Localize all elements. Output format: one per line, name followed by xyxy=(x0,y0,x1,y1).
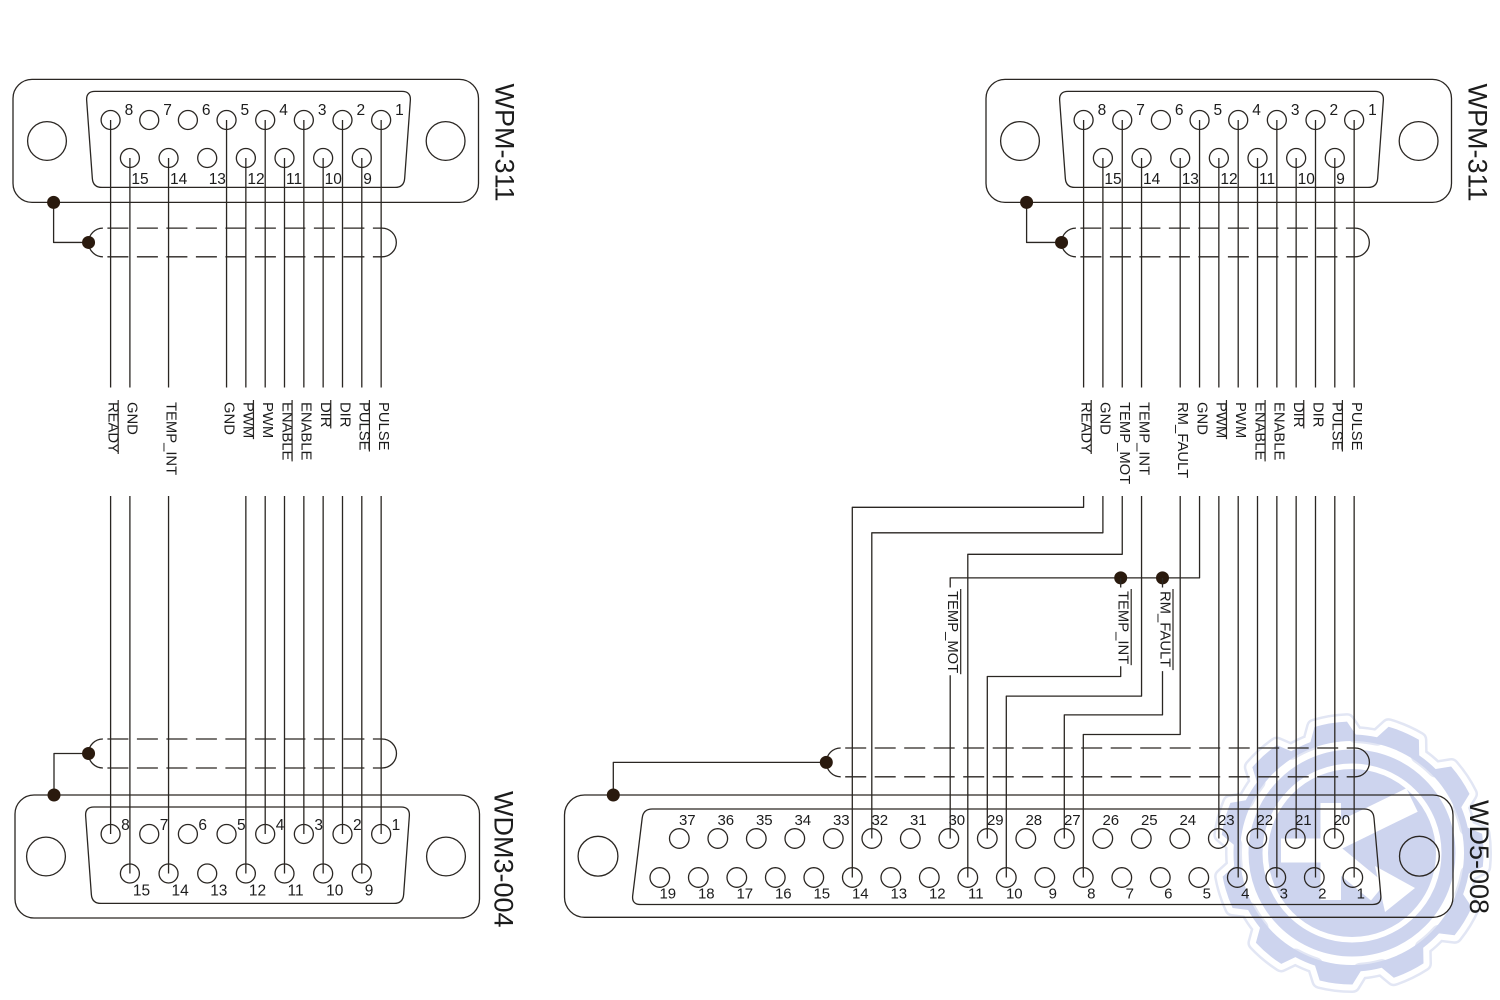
svg-text:4: 4 xyxy=(276,817,285,834)
svg-text:1: 1 xyxy=(395,102,404,119)
svg-text:31: 31 xyxy=(910,812,927,829)
svg-text:26: 26 xyxy=(1102,812,1119,829)
svg-text:11: 11 xyxy=(1259,171,1275,188)
svg-text:TEMP_INT: TEMP_INT xyxy=(1135,402,1151,475)
svg-text:2: 2 xyxy=(1330,102,1339,119)
svg-text:4: 4 xyxy=(1241,886,1249,903)
svg-text:15: 15 xyxy=(131,171,148,188)
svg-text:RM_FAULT: RM_FAULT xyxy=(1174,402,1190,478)
svg-text:3: 3 xyxy=(314,817,323,834)
svg-text:DIR: DIR xyxy=(336,402,352,427)
svg-text:33: 33 xyxy=(833,812,850,829)
svg-text:15: 15 xyxy=(1104,171,1121,188)
svg-text:6: 6 xyxy=(198,817,207,834)
svg-text:21: 21 xyxy=(1295,812,1312,829)
svg-text:10: 10 xyxy=(1298,171,1316,188)
svg-text:GND: GND xyxy=(220,402,236,435)
svg-text:1: 1 xyxy=(1357,886,1365,903)
svg-text:1: 1 xyxy=(392,817,401,834)
svg-text:10: 10 xyxy=(326,883,344,900)
svg-text:13: 13 xyxy=(890,886,907,903)
svg-text:14: 14 xyxy=(172,883,190,900)
svg-text:14: 14 xyxy=(852,886,869,903)
svg-text:19: 19 xyxy=(659,886,676,903)
svg-text:15: 15 xyxy=(133,883,150,900)
svg-text:TEMP_INT: TEMP_INT xyxy=(1115,591,1131,664)
svg-text:18: 18 xyxy=(698,886,715,903)
svg-text:2: 2 xyxy=(1318,886,1326,903)
svg-text:5: 5 xyxy=(241,102,250,119)
svg-text:GND: GND xyxy=(124,402,140,435)
svg-text:9: 9 xyxy=(1049,886,1057,903)
svg-text:13: 13 xyxy=(1182,171,1199,188)
svg-text:TEMP_INT: TEMP_INT xyxy=(162,402,178,475)
svg-text:13: 13 xyxy=(209,171,226,188)
svg-text:GND: GND xyxy=(1193,402,1209,435)
svg-text:PWM: PWM xyxy=(1232,402,1248,438)
svg-text:17: 17 xyxy=(736,886,753,903)
svg-text:16: 16 xyxy=(775,886,792,903)
svg-text:10: 10 xyxy=(1006,886,1023,903)
svg-text:4: 4 xyxy=(1252,102,1261,119)
svg-text:37: 37 xyxy=(679,812,696,829)
svg-text:3: 3 xyxy=(318,102,327,119)
svg-text:1: 1 xyxy=(1368,102,1377,119)
svg-text:8: 8 xyxy=(125,102,134,119)
svg-text:TEMP_MOT: TEMP_MOT xyxy=(1116,402,1132,484)
svg-text:9: 9 xyxy=(1336,171,1345,188)
svg-text:DIR: DIR xyxy=(1309,402,1325,427)
svg-text:PULSE: PULSE xyxy=(1348,402,1364,451)
svg-text:25: 25 xyxy=(1141,812,1158,829)
svg-text:5: 5 xyxy=(1214,102,1223,119)
svg-text:12: 12 xyxy=(929,886,946,903)
svg-text:7: 7 xyxy=(1136,102,1145,119)
svg-text:10: 10 xyxy=(325,171,343,188)
svg-text:ENABLE: ENABLE xyxy=(1271,402,1287,461)
svg-text:8: 8 xyxy=(121,817,130,834)
svg-text:12: 12 xyxy=(247,171,264,188)
svg-text:9: 9 xyxy=(363,171,372,188)
svg-text:11: 11 xyxy=(286,171,302,188)
svg-text:23: 23 xyxy=(1218,812,1235,829)
svg-text:WPM-311: WPM-311 xyxy=(1463,84,1493,202)
svg-text:32: 32 xyxy=(871,812,888,829)
svg-text:PULSE: PULSE xyxy=(375,402,391,451)
svg-text:4: 4 xyxy=(279,102,288,119)
svg-text:15: 15 xyxy=(813,886,830,903)
svg-text:24: 24 xyxy=(1179,812,1196,829)
svg-text:8: 8 xyxy=(1087,886,1095,903)
svg-text:34: 34 xyxy=(794,812,811,829)
svg-text:35: 35 xyxy=(756,812,773,829)
svg-text:29: 29 xyxy=(987,812,1004,829)
svg-text:7: 7 xyxy=(163,102,172,119)
svg-text:12: 12 xyxy=(1220,171,1237,188)
svg-text:22: 22 xyxy=(1256,812,1273,829)
svg-text:6: 6 xyxy=(1175,102,1184,119)
svg-text:2: 2 xyxy=(353,817,362,834)
svg-text:8: 8 xyxy=(1098,102,1107,119)
svg-text:12: 12 xyxy=(249,883,266,900)
svg-text:GND: GND xyxy=(1097,402,1113,435)
svg-text:27: 27 xyxy=(1064,812,1081,829)
svg-text:11: 11 xyxy=(288,883,304,900)
svg-text:RM_FAULT: RM_FAULT xyxy=(1156,591,1172,667)
svg-text:3: 3 xyxy=(1280,886,1288,903)
svg-text:6: 6 xyxy=(202,102,211,119)
svg-text:WDM3-004: WDM3-004 xyxy=(489,791,519,928)
svg-text:28: 28 xyxy=(1025,812,1042,829)
svg-text:7: 7 xyxy=(1126,886,1134,903)
svg-text:14: 14 xyxy=(1143,171,1161,188)
svg-text:5: 5 xyxy=(1203,886,1211,903)
svg-text:30: 30 xyxy=(948,812,965,829)
svg-text:ENABLE: ENABLE xyxy=(298,402,314,461)
svg-text:36: 36 xyxy=(717,812,734,829)
svg-text:14: 14 xyxy=(170,171,188,188)
svg-text:7: 7 xyxy=(160,817,169,834)
svg-text:13: 13 xyxy=(210,883,227,900)
svg-text:5: 5 xyxy=(237,817,246,834)
svg-text:6: 6 xyxy=(1164,886,1172,903)
svg-text:20: 20 xyxy=(1333,812,1350,829)
svg-text:11: 11 xyxy=(968,886,984,903)
svg-text:9: 9 xyxy=(365,883,374,900)
svg-text:PWM: PWM xyxy=(259,402,275,438)
svg-text:TEMP_MOT: TEMP_MOT xyxy=(944,591,960,673)
svg-text:WPM-311: WPM-311 xyxy=(490,84,520,202)
svg-text:3: 3 xyxy=(1291,102,1300,119)
svg-text:WD5-008: WD5-008 xyxy=(1464,800,1494,914)
svg-text:2: 2 xyxy=(357,102,366,119)
